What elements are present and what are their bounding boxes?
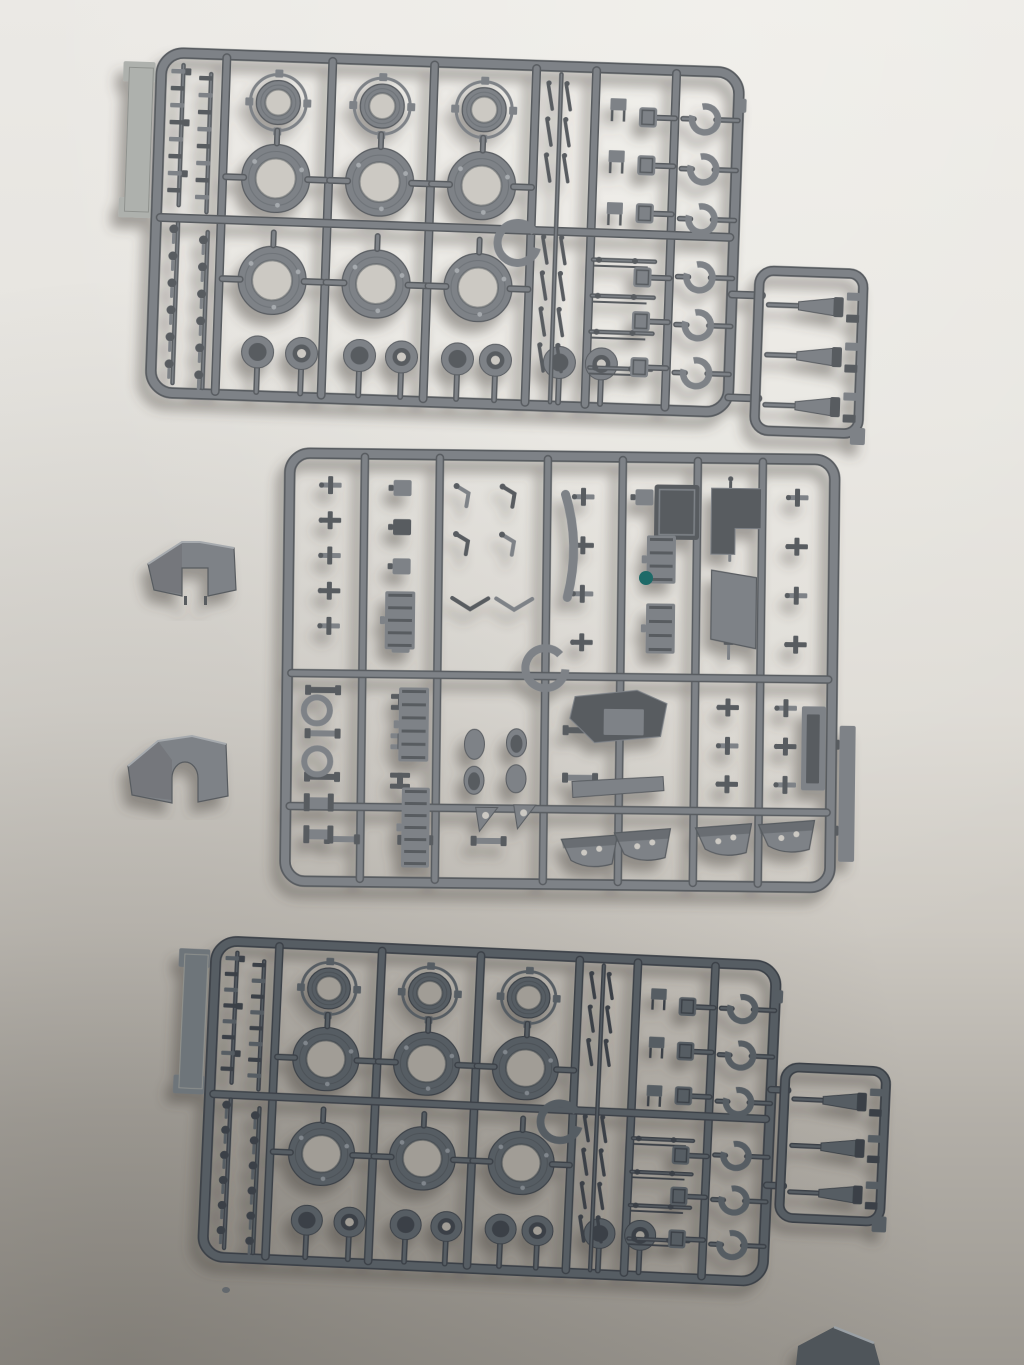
small-block-part [239,956,245,963]
ball-joint-stem [171,260,174,271]
gate [222,279,240,280]
small-t-part [725,737,730,755]
gate [408,285,426,286]
small-bar-end [471,836,477,846]
small-t-part [326,617,331,635]
small-fitting [865,1202,878,1210]
gate [473,1161,490,1162]
small-stub [630,494,635,500]
small-t-part [782,776,787,794]
small-bar-part [224,987,238,992]
ball-joint-stem [168,341,171,352]
gate [326,282,344,283]
gate-stub [394,720,399,728]
small-plate-part [393,519,411,535]
hull-roof-hatch [604,709,644,735]
gate [428,1019,429,1031]
gate-stub [642,555,647,563]
small-block-part [235,1050,241,1057]
gate [330,180,348,181]
gate [226,177,244,178]
ball-joint-stem [225,1108,228,1118]
ball-joint-stem [220,1209,223,1219]
small-bar-part [197,127,211,132]
small-bar-end [501,836,507,846]
small-fitting [847,292,860,300]
clamp-part [397,773,403,789]
rail-lug [834,826,838,836]
ball-joint-stem [249,1219,252,1229]
photo-model-kit-sprues [0,0,1024,1365]
small-bar-part [168,171,182,176]
small-bar-part [223,1003,237,1008]
small-bar-part [249,1026,263,1031]
gate [514,187,532,188]
gate [428,286,446,287]
ball-joint-stem [221,1184,224,1194]
small-bar-part [225,956,239,961]
shock-head [852,1185,863,1204]
stand-part [608,150,624,163]
gate [277,1057,294,1058]
small-bar-part [250,1010,264,1015]
small-t-part [580,585,585,603]
small-t-part [794,538,799,556]
stand-part [649,1037,665,1049]
small-fitting [843,392,856,400]
small-bar-part [249,1042,263,1047]
gate-stub [398,988,406,996]
stand-part [647,1085,663,1097]
spool-flange [303,825,309,843]
small-t-part [327,546,332,564]
gate [651,278,669,279]
shock-rod [792,1145,821,1146]
satellite-foot [850,428,866,446]
small-bar-part [308,687,338,693]
gate [308,180,326,181]
gate [304,282,322,283]
small-block-part [185,68,191,75]
shock-head [831,347,842,367]
small-t-part [724,775,729,793]
ball-joint-stem [250,1194,253,1204]
ball-joint-stem [222,1159,225,1169]
small-bar-part [220,1066,234,1071]
gate-stub [396,823,401,831]
wheel-parts [272,956,579,1197]
dome-part [506,765,526,793]
gate-stub [526,967,534,975]
gate [477,1066,494,1067]
gate [374,1156,391,1157]
shock-rod [765,405,795,406]
gate-stub [275,69,283,77]
gate [552,1164,569,1165]
frame-nub [736,99,746,113]
gate [648,368,666,369]
small-bar-part [251,994,265,999]
small-bar-end [335,729,341,739]
small-stub [388,524,393,530]
wheel-parts [221,68,535,324]
gate-stub [303,99,311,107]
small-bar-part [252,963,266,968]
small-bar-part [169,120,183,125]
gate-stub [349,101,357,109]
small-bar-part [248,1057,262,1062]
ball-joint-stem [253,1119,256,1129]
gate [353,1155,370,1156]
track-link-stack-part [646,603,676,653]
shock-rod [794,1099,823,1100]
ball-joint-stem [251,1169,254,1179]
gate-stub [379,73,387,81]
small-bar-part [247,1073,261,1078]
small-bar-part [196,161,210,166]
small-speck [222,1287,230,1293]
gate-stub [481,77,489,85]
gate [655,166,673,167]
small-bar-part [223,1019,237,1024]
gate [453,1160,470,1161]
small-t-part [783,738,788,756]
gate [696,1007,713,1008]
small-fitting [866,1181,879,1189]
shock-head [854,1139,865,1158]
small-bar-end [335,685,341,695]
gate [650,322,668,323]
small-bar-part [169,137,183,142]
equipment-box-part [654,484,700,540]
small-bar-part [198,110,212,115]
gate [510,289,528,290]
ball-joint-stem [169,314,172,325]
stand-part [607,202,623,215]
gate [378,1061,395,1062]
small-t-part [725,699,730,717]
small-fitting [869,1109,882,1117]
spool-flange [304,793,310,811]
small-stub [389,485,394,491]
small-plate-part [393,480,411,496]
track-link-stack-part [398,687,429,761]
ball-joint-stem [172,233,175,244]
small-bar-part [195,195,209,200]
small-fitting [867,1155,880,1163]
dome-part [464,729,484,759]
stand-part [651,988,667,1000]
small-t-part [795,489,800,507]
small-bar-part [170,103,184,108]
shock-head [857,1093,868,1112]
ball-joint-stem [199,325,202,336]
rail-lug [835,740,839,750]
small-bar-end [305,685,311,695]
small-plate-part [635,489,653,505]
small-bar-end [563,725,569,735]
gate [556,1070,573,1071]
ball-joint-stem [170,287,173,298]
gate-stub [454,990,462,998]
gate-stub [380,616,385,624]
shock-head [830,397,841,417]
gate [327,1014,328,1026]
spool-flange [327,825,333,843]
small-bar-part [167,188,181,193]
gate-stub [553,995,561,1003]
small-fitting [846,314,859,322]
small-t-part [328,476,333,494]
side-rail-part [838,726,856,862]
small-t-part [793,636,798,654]
small-plate-part [393,558,411,574]
small-bar-part [474,838,504,844]
small-block-part [183,119,189,126]
spool-flange [328,793,334,811]
small-bar-part [225,972,239,977]
open-box-slot [806,714,820,783]
gate [527,1024,528,1036]
gate-stub [297,983,305,991]
small-bar-end [562,773,568,783]
small-t-part [783,699,788,717]
small-bar-part [171,86,185,91]
small-fitting [842,414,855,422]
small-fitting [868,1135,881,1143]
scene-svg [0,0,1024,1365]
gate [654,214,672,215]
gate [523,1118,524,1130]
gate [458,1065,475,1066]
gate-stub [245,97,253,105]
gate [688,1197,705,1198]
small-bar-part [198,93,212,98]
shock-head [833,297,844,317]
small-bar-part [195,178,209,183]
ball-joint-stem [201,271,204,282]
small-t-part [794,587,799,605]
small-t-part [328,511,333,529]
ball-joint-stem [248,1245,251,1255]
small-t-part [581,488,586,506]
gate-stub [509,107,517,115]
gate-stub [496,992,504,1000]
mudguard-pin [204,596,207,605]
gate [357,1060,374,1061]
small-bar-part [199,76,213,81]
small-bar-part [197,144,211,149]
gate [657,118,675,119]
stand-part [610,98,626,111]
small-stub [388,563,393,569]
ball-joint-stem [219,1234,222,1244]
gate-stub [427,962,435,970]
gate [692,1096,709,1097]
small-block-part [237,1003,243,1010]
frame-nub [773,990,783,1003]
hull-side-part [711,570,757,649]
teal-paint-dot [639,571,653,585]
small-bar-part [252,978,266,983]
small-bar-end [354,834,360,844]
gate [689,1156,706,1157]
shock-rod [767,355,797,356]
small-block-part [182,170,188,177]
gate-stub [353,986,361,994]
shock-rod [769,305,799,306]
small-bar-part [171,69,185,74]
small-fitting [845,342,858,350]
small-t-part [327,582,332,600]
ball-joint-stem [198,352,201,363]
ball-joint-stem [252,1144,255,1154]
small-t-part [579,633,584,651]
ball-joint-stem [200,298,203,309]
shock-rod [790,1192,819,1193]
satellite-foot [871,1216,886,1232]
small-bar-part [222,1035,236,1040]
gate [686,1239,703,1240]
small-bar-part [168,154,182,159]
ball-joint-stem [197,379,200,390]
gate [694,1052,711,1053]
ball-joint-stem [167,368,170,379]
gate-stub [407,103,415,111]
gate-stub [451,105,459,113]
small-bar-part [221,1051,235,1056]
gate-stub [326,958,334,966]
ball-joint-stem [223,1134,226,1144]
small-bar-part [308,730,338,736]
gate [273,1152,290,1153]
gate [323,1109,324,1121]
ball-joint-stem [201,244,204,255]
gate [432,184,450,185]
small-t-part [580,536,585,554]
gate-stub [641,624,646,632]
gate [424,1114,425,1126]
small-fitting [870,1088,883,1096]
small-bar-end [334,772,340,782]
small-fitting [844,364,857,372]
small-bar-end [305,728,311,738]
gate [412,183,430,184]
mudguard-pin [184,596,187,605]
